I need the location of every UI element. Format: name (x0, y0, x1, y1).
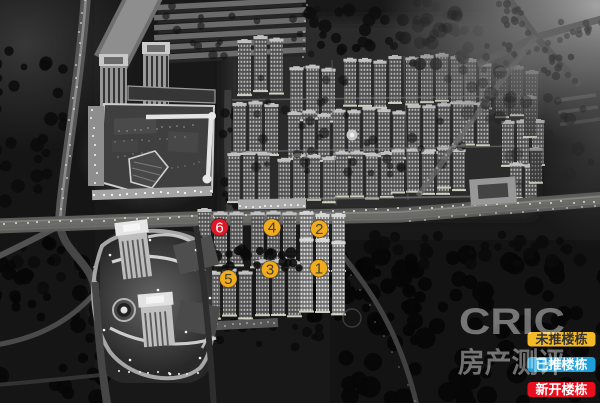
svg-text:房产测评: 房产测评 (458, 346, 565, 378)
svg-text:新开楼栋: 新开楼栋 (535, 382, 587, 397)
svg-text:4: 4 (268, 220, 276, 237)
svg-text:2: 2 (315, 221, 323, 238)
svg-text:6: 6 (215, 219, 223, 236)
svg-text:5: 5 (224, 271, 232, 288)
svg-text:1: 1 (315, 261, 323, 278)
svg-text:CRIC: CRIC (459, 301, 565, 342)
svg-text:3: 3 (266, 262, 274, 279)
